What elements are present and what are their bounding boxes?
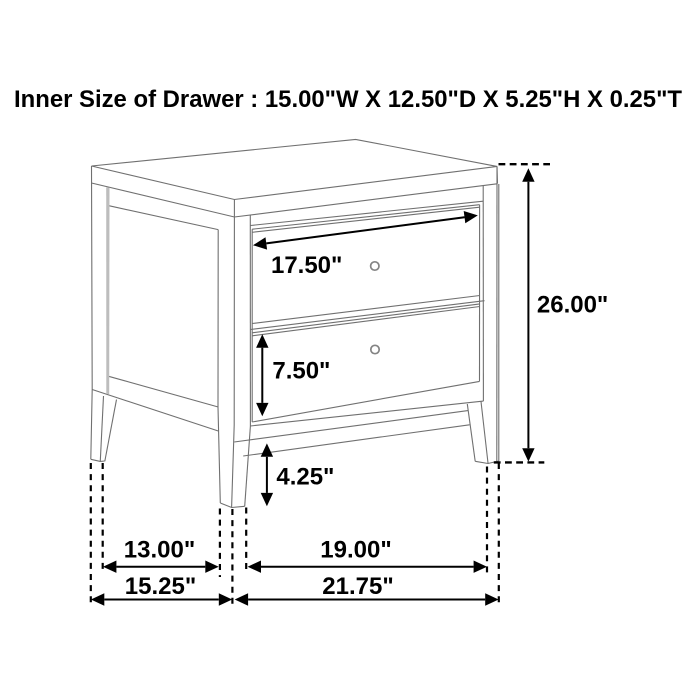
svg-text:17.50": 17.50"	[271, 252, 342, 279]
svg-text:19.00": 19.00"	[320, 536, 391, 563]
svg-text:13.00": 13.00"	[124, 536, 195, 563]
svg-text:4.25": 4.25"	[276, 464, 334, 491]
svg-text:21.75": 21.75"	[322, 573, 393, 600]
svg-text:7.50": 7.50"	[272, 358, 330, 385]
svg-text:Inner Size of Drawer : 15.00"W: Inner Size of Drawer : 15.00"W X 12.50"D…	[14, 86, 682, 113]
svg-text:26.00": 26.00"	[537, 292, 608, 319]
svg-text:15.25": 15.25"	[125, 573, 196, 600]
